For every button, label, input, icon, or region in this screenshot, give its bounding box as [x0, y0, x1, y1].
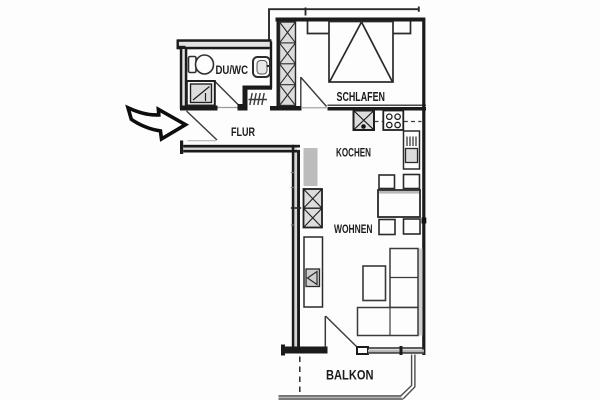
svg-text:BALKON: BALKON — [326, 368, 374, 383]
svg-text:DU/WC: DU/WC — [216, 63, 249, 77]
svg-text:FLUR: FLUR — [231, 125, 255, 139]
svg-text:WOHNEN: WOHNEN — [334, 222, 373, 236]
svg-text:SCHLAFEN: SCHLAFEN — [337, 90, 386, 104]
svg-text:KOCHEN: KOCHEN — [336, 146, 371, 160]
